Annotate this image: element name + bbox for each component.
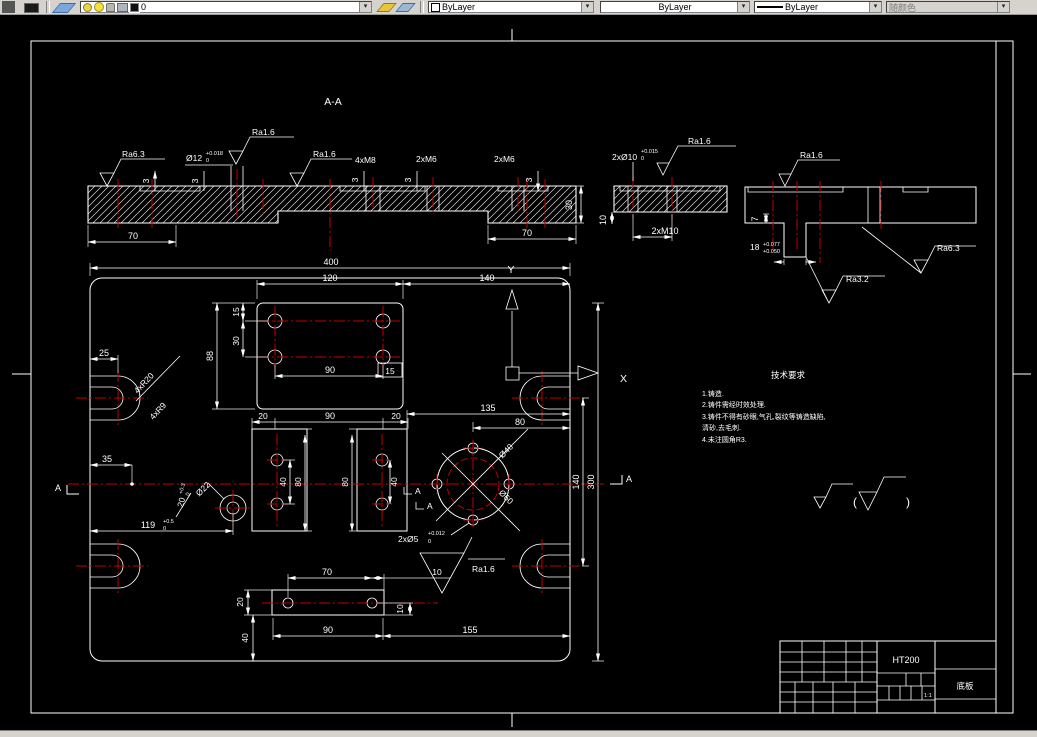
- bottom-boss: [262, 590, 438, 615]
- dim-15-v: 15: [231, 307, 241, 317]
- section-view: A-A 70 70 30 10 2xM10 7 3 3 3 3: [88, 96, 976, 303]
- lineweight-sample-icon: [757, 6, 783, 8]
- tech-notes-title: 技术要求: [771, 370, 806, 380]
- layers-dialog-button[interactable]: [52, 1, 76, 13]
- dim-90-pocket: 90: [325, 365, 335, 375]
- ra63-right-label: Ra6.3: [937, 243, 960, 253]
- dim-119: 119: [141, 520, 155, 530]
- ra16-c-label: Ra1.6: [688, 136, 711, 146]
- radius-4xR9-label: 4xR9: [147, 400, 168, 422]
- ra16-a-label: Ra1.6: [252, 127, 275, 137]
- section-body-main: [88, 186, 576, 223]
- tech-note-line: 4.未注圆角R3.: [702, 435, 747, 444]
- spotface-circle: Ø22 20 +0.3 0: [175, 479, 251, 526]
- plan-dimensions: 400 120 140 88 15 30 25 90 15 20 90 20 4…: [90, 257, 604, 661]
- dim-3: 3: [524, 177, 534, 182]
- lineweight-control-combo[interactable]: ByLayer ▾: [754, 1, 882, 13]
- dia22-label: Ø22: [194, 479, 213, 498]
- dim-119-tol-up: +0.5: [163, 519, 174, 525]
- app-icon[interactable]: [2, 1, 15, 13]
- titleblock-material: HT200: [892, 655, 919, 665]
- dim-20-tol-rotated: 20 +0.3 0: [175, 483, 194, 509]
- surface-note: ( ): [814, 477, 910, 510]
- dim-18-tol-up: +0.077: [763, 242, 780, 248]
- dim-88: 88: [205, 351, 215, 361]
- make-layer-current-button[interactable]: [20, 1, 42, 13]
- dim-7: 7: [750, 216, 760, 221]
- layers-icon: [52, 3, 76, 13]
- paren-open: (: [853, 495, 857, 509]
- layer-control-combo[interactable]: 0 ▾: [80, 1, 372, 13]
- linetype-control-value: ByLayer: [658, 2, 691, 12]
- paren-close: ): [906, 495, 910, 509]
- dim-90-c: 90: [323, 625, 333, 635]
- dim-20c-tol-dn: 0: [185, 492, 192, 497]
- ra63-left-label: Ra6.3: [122, 149, 145, 159]
- section-body-block: [614, 186, 727, 212]
- layer-plot-printer-icon[interactable]: [117, 3, 128, 12]
- dia10-label: 2xØ10: [612, 152, 637, 162]
- boss-holes: [271, 454, 388, 510]
- layer-lock-icon[interactable]: [106, 3, 115, 12]
- thread-2xM6-a: 2xM6: [416, 154, 437, 164]
- dim-20-b: 20: [391, 411, 401, 421]
- bottom-strip: [0, 730, 1037, 737]
- current-layer-name: 0: [141, 2, 146, 12]
- layer-on-bulb-icon[interactable]: [83, 3, 92, 12]
- dim-25: 25: [99, 348, 109, 358]
- dim-15-boxed: 15: [385, 366, 395, 376]
- section-letter-right: A: [626, 474, 632, 484]
- color-swatch-icon: [431, 3, 440, 12]
- color-control-value: ByLayer: [442, 2, 475, 12]
- dim-119-tol-dn: 0: [163, 526, 166, 532]
- linetype-combo-dropdown-icon[interactable]: ▾: [737, 2, 749, 12]
- section-title: A-A: [324, 96, 342, 108]
- dia12-label: Ø12: [186, 153, 202, 163]
- ra16-d-label: Ra1.6: [800, 150, 823, 160]
- dim-300: 300: [586, 474, 596, 489]
- dim-20-a: 20: [258, 411, 268, 421]
- lineweight-combo-dropdown-icon[interactable]: ▾: [869, 2, 881, 12]
- tech-note-line: 1.铸造.: [702, 389, 724, 398]
- color-control-combo[interactable]: ByLayer ▾: [428, 1, 594, 13]
- axis-y-label: Y: [507, 264, 514, 276]
- dia10-tol-dn: 0: [641, 156, 644, 162]
- dim-135: 135: [480, 403, 495, 413]
- plan-view: Ø40 Ø60 2xØ5 +0.012 0 4xR20 4xR9 Ø22 20 …: [55, 257, 632, 661]
- dim-70-bottom: 70: [322, 567, 332, 577]
- layer-current-icon: [24, 3, 39, 13]
- ra16-plan-label: Ra1.6: [472, 564, 495, 574]
- dim-70-right: 70: [522, 228, 532, 238]
- dim-120: 120: [322, 273, 337, 283]
- dia12-tol-dn: 0: [206, 158, 209, 164]
- plan-roughness-callout: Ra1.6: [420, 537, 505, 593]
- dim-155: 155: [462, 625, 477, 635]
- ra32-label: Ra3.2: [846, 274, 869, 284]
- dim-3: 3: [403, 177, 413, 182]
- dim-30: 30: [564, 200, 574, 210]
- dim-80-l: 80: [293, 477, 303, 487]
- section-letter-mid-b: A: [427, 501, 433, 511]
- dim-80-c: 80: [515, 417, 525, 427]
- dim-90-b: 90: [325, 411, 335, 421]
- layer-previous-button[interactable]: [378, 1, 394, 13]
- title-block: HT200 1:1 底板: [780, 641, 996, 713]
- tech-note-line: 清砂,去毛刺.: [702, 423, 741, 432]
- radius-4xR20-label: 4xR20: [132, 370, 156, 395]
- dim-10-v: 10: [395, 604, 405, 614]
- dia10-tol-up: +0.015: [641, 149, 658, 155]
- ra16-b-label: Ra1.6: [313, 149, 336, 159]
- dim-20-v: 20: [235, 597, 245, 607]
- dim-400: 400: [323, 257, 338, 267]
- dia5-label: 2xØ5: [398, 534, 419, 544]
- dim-140-top: 140: [479, 273, 494, 283]
- model-space-canvas[interactable]: A-A 70 70 30 10 2xM10 7 3 3 3 3: [0, 15, 1037, 730]
- color-combo-dropdown-icon[interactable]: ▾: [581, 2, 593, 12]
- linetype-control-combo[interactable]: ByLayer ▾: [600, 1, 750, 13]
- dim-18-tol-dn: +0.050: [763, 249, 780, 255]
- axis-x-label: X: [620, 373, 627, 385]
- layer-states-icon: [395, 3, 416, 12]
- dim-18: 18: [750, 242, 760, 252]
- titleblock-scale: 1:1: [924, 693, 932, 699]
- thread-2xM6-b: 2xM6: [494, 154, 515, 164]
- dim-3: 3: [190, 178, 200, 183]
- dim-3: 3: [350, 177, 360, 182]
- plotstyle-control-value: 随颜色: [889, 1, 916, 14]
- dim-3: 3: [141, 178, 151, 183]
- section-callouts: Ø12 +0.018 0 4xM8 2xM6 2xM6 2xØ10 +0.015…: [185, 149, 658, 181]
- dim-30-v: 30: [231, 336, 241, 346]
- layer-states-button[interactable]: [397, 1, 413, 13]
- dim-20c: 20: [175, 496, 187, 508]
- lineweight-control-value: ByLayer: [785, 2, 818, 12]
- toolbar-separator: [420, 1, 424, 13]
- plotstyle-combo-dropdown-icon[interactable]: ▾: [997, 2, 1009, 12]
- dia5-tol-up: +0.012: [428, 531, 445, 537]
- sheet-border: [12, 29, 1031, 727]
- dim-70-left: 70: [128, 231, 138, 241]
- dim-40-r: 40: [389, 477, 399, 487]
- tech-notes: 技术要求 1.铸造. 2.铸件需经时效处理. 3.铸件不得有砂眼,气孔,裂纹等铸…: [702, 370, 826, 444]
- tech-note-line: 2.铸件需经时效处理.: [702, 400, 766, 409]
- toolbar-separator: [46, 1, 50, 13]
- section-letter-mid-a: A: [415, 486, 421, 496]
- dia12-tol-up: +0.018: [206, 151, 223, 157]
- dim-40-l: 40: [278, 477, 288, 487]
- layer-freeze-sun-icon[interactable]: [94, 2, 104, 12]
- dim-35: 35: [102, 454, 112, 464]
- section-letter-left: A: [55, 483, 61, 493]
- tech-note-line: 3.铸件不得有砂眼,气孔,裂纹等铸造缺陷,: [702, 412, 826, 421]
- dim-40-v: 40: [240, 633, 250, 643]
- layer-previous-icon: [376, 3, 397, 12]
- dim-80-r: 80: [340, 477, 350, 487]
- thread-2xM10: 2xM10: [651, 226, 678, 236]
- layer-color-swatch-icon: [130, 3, 139, 12]
- dim-10-bottom: 10: [432, 567, 442, 577]
- plotstyle-control-combo[interactable]: 随颜色 ▾: [886, 1, 1010, 13]
- dim-10: 10: [598, 215, 608, 225]
- layer-combo-dropdown-icon[interactable]: ▾: [359, 2, 371, 12]
- dim-140-right: 140: [571, 474, 581, 489]
- top-toolbar: 0 ▾ ByLayer ▾ ByLayer ▾ ByLayer ▾ 随颜色 ▾: [0, 0, 1037, 15]
- thread-4xM8: 4xM8: [355, 155, 376, 165]
- dia5-tol-dn: 0: [428, 539, 431, 545]
- dia60-label: Ø60: [497, 488, 516, 507]
- titleblock-part-name: 底板: [956, 681, 974, 691]
